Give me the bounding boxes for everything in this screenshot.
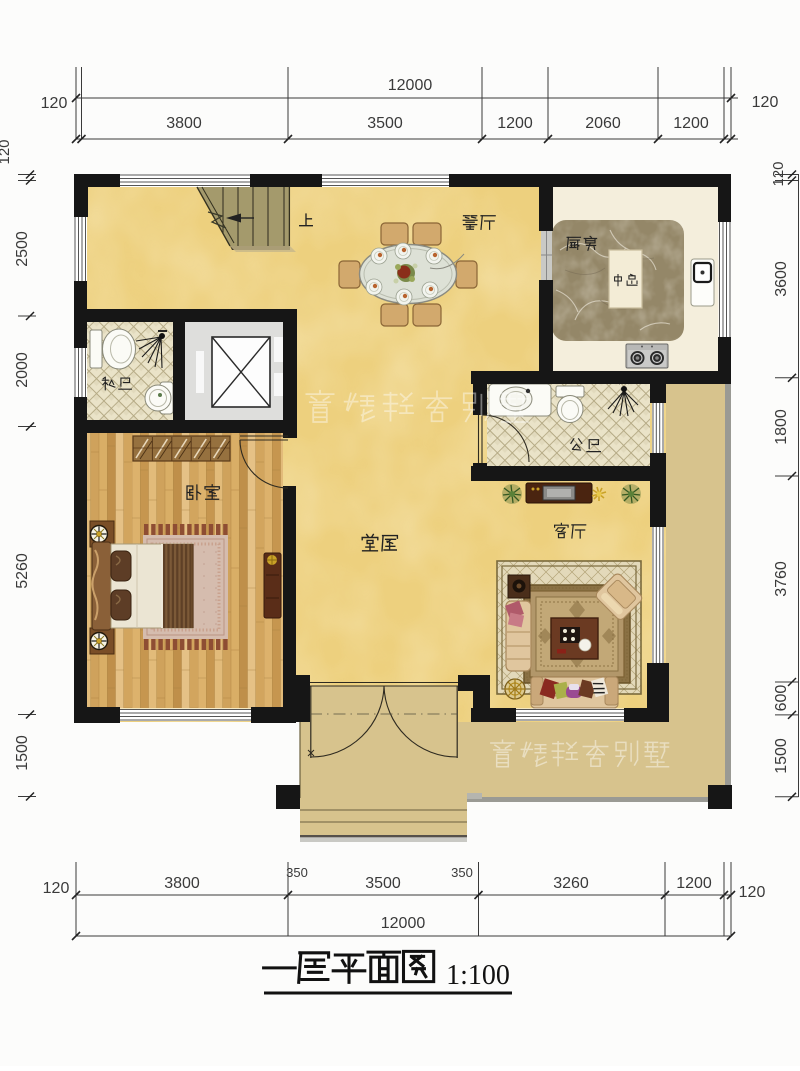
- svg-text:1800: 1800: [773, 409, 790, 445]
- svg-text:3760: 3760: [773, 561, 790, 597]
- svg-text:1:100: 1:100: [446, 960, 510, 991]
- svg-text:3600: 3600: [773, 261, 790, 297]
- svg-text:2000: 2000: [14, 352, 31, 388]
- svg-text:600: 600: [773, 685, 790, 712]
- svg-text:120: 120: [0, 139, 13, 164]
- svg-text:1200: 1200: [673, 115, 709, 132]
- svg-text:1500: 1500: [14, 735, 31, 771]
- svg-text:3500: 3500: [365, 875, 401, 892]
- svg-text:2060: 2060: [585, 115, 621, 132]
- svg-text:3800: 3800: [164, 875, 200, 892]
- svg-text:12000: 12000: [381, 915, 426, 932]
- svg-text:120: 120: [41, 95, 68, 112]
- svg-text:350: 350: [451, 865, 473, 880]
- svg-text:3800: 3800: [166, 115, 202, 132]
- svg-text:120: 120: [770, 161, 787, 186]
- svg-text:2500: 2500: [14, 231, 31, 267]
- svg-text:1500: 1500: [773, 738, 790, 774]
- svg-text:350: 350: [286, 865, 308, 880]
- svg-text:120: 120: [752, 94, 779, 111]
- svg-text:1200: 1200: [676, 875, 712, 892]
- svg-text:3500: 3500: [367, 115, 403, 132]
- svg-text:12000: 12000: [388, 77, 433, 94]
- svg-text:1200: 1200: [497, 115, 533, 132]
- svg-text:120: 120: [43, 880, 70, 897]
- svg-text:5260: 5260: [14, 553, 31, 589]
- svg-text:120: 120: [739, 884, 766, 901]
- svg-text:3260: 3260: [553, 875, 589, 892]
